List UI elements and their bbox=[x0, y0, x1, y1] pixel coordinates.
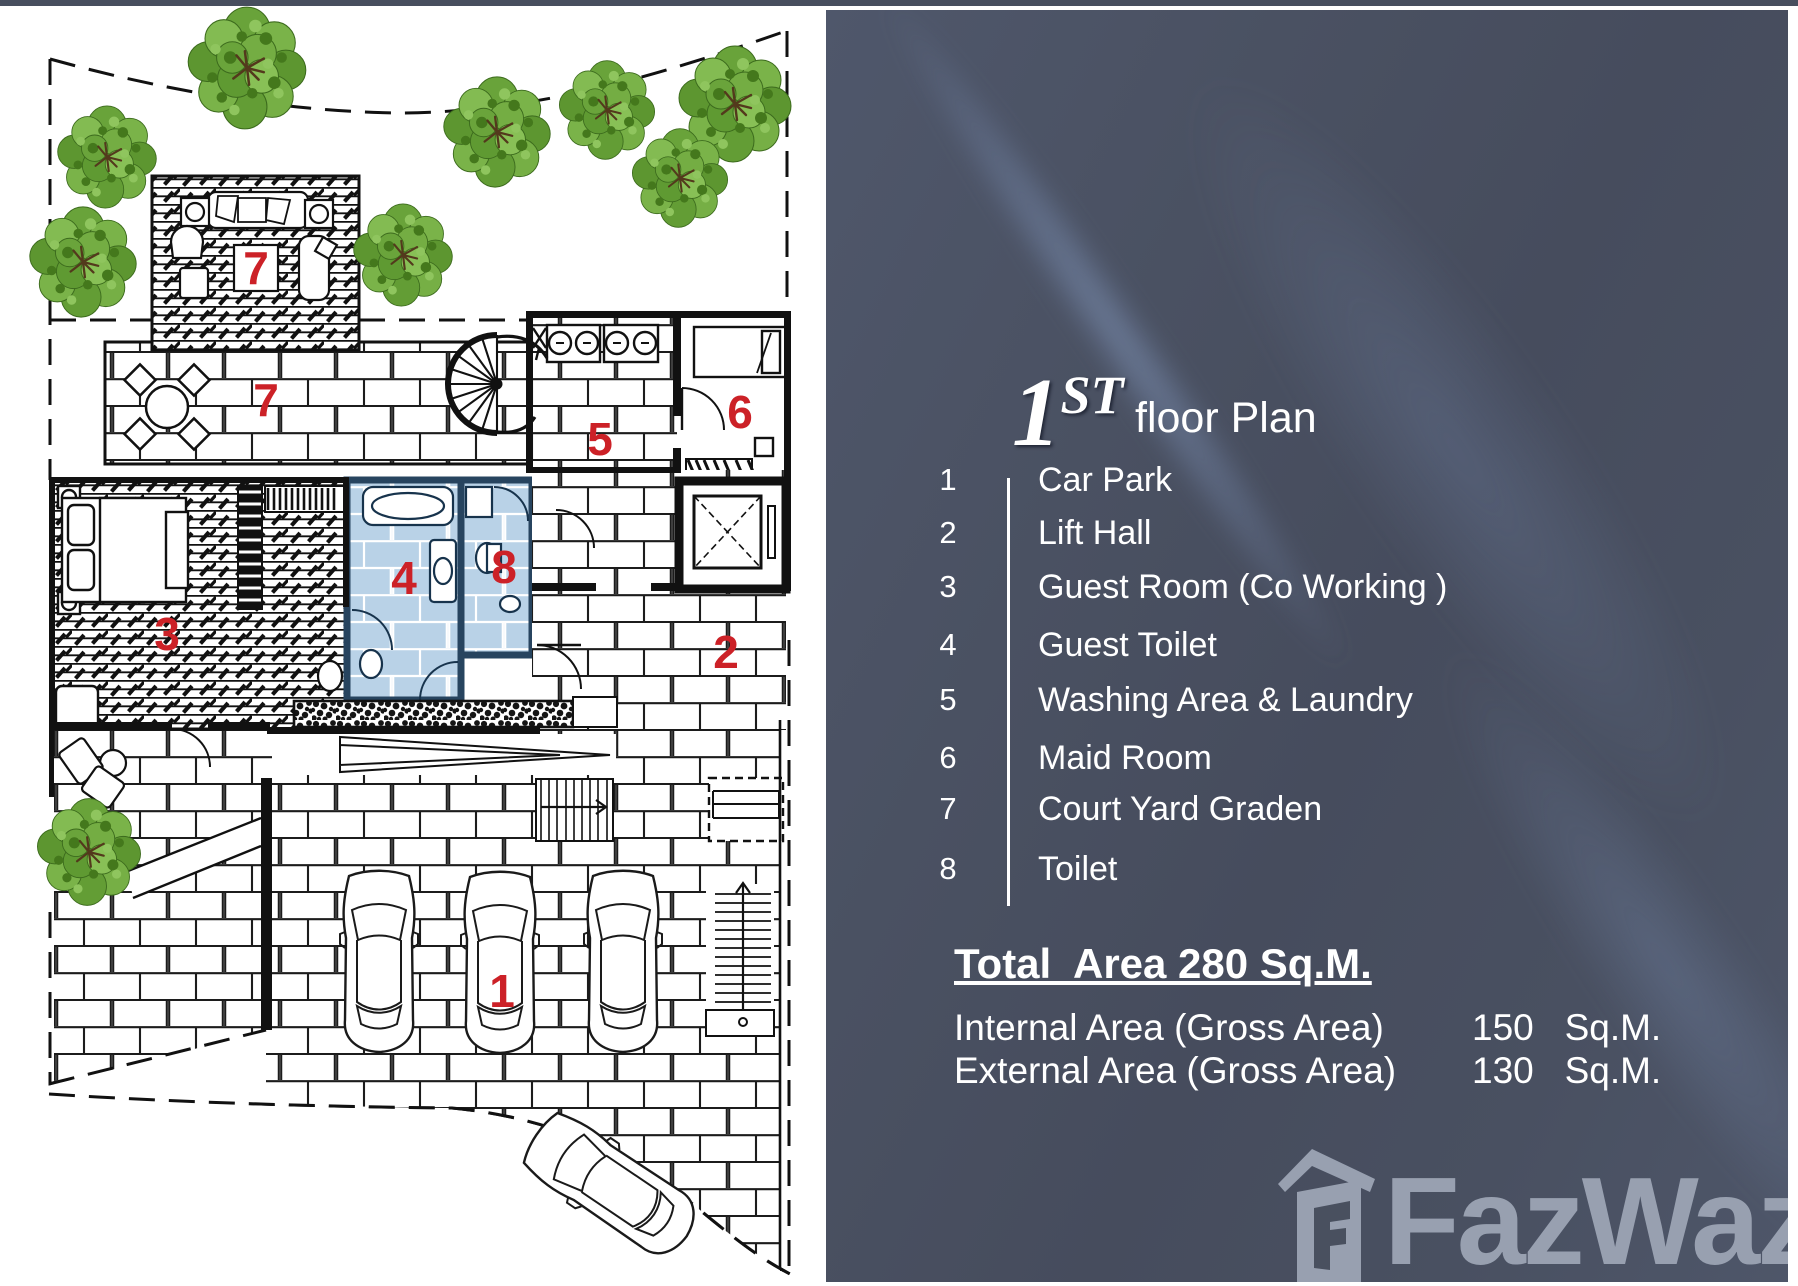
svg-text:FazWaz: FazWaz bbox=[1384, 1153, 1788, 1282]
svg-text:2: 2 bbox=[713, 626, 739, 678]
svg-text:7: 7 bbox=[253, 374, 279, 426]
svg-text:7: 7 bbox=[243, 242, 269, 294]
svg-text:1: 1 bbox=[489, 965, 515, 1017]
svg-text:8: 8 bbox=[491, 541, 517, 593]
svg-text:5: 5 bbox=[587, 413, 613, 465]
svg-text:3: 3 bbox=[154, 608, 180, 660]
svg-text:4: 4 bbox=[391, 552, 417, 604]
svg-text:6: 6 bbox=[727, 386, 753, 438]
